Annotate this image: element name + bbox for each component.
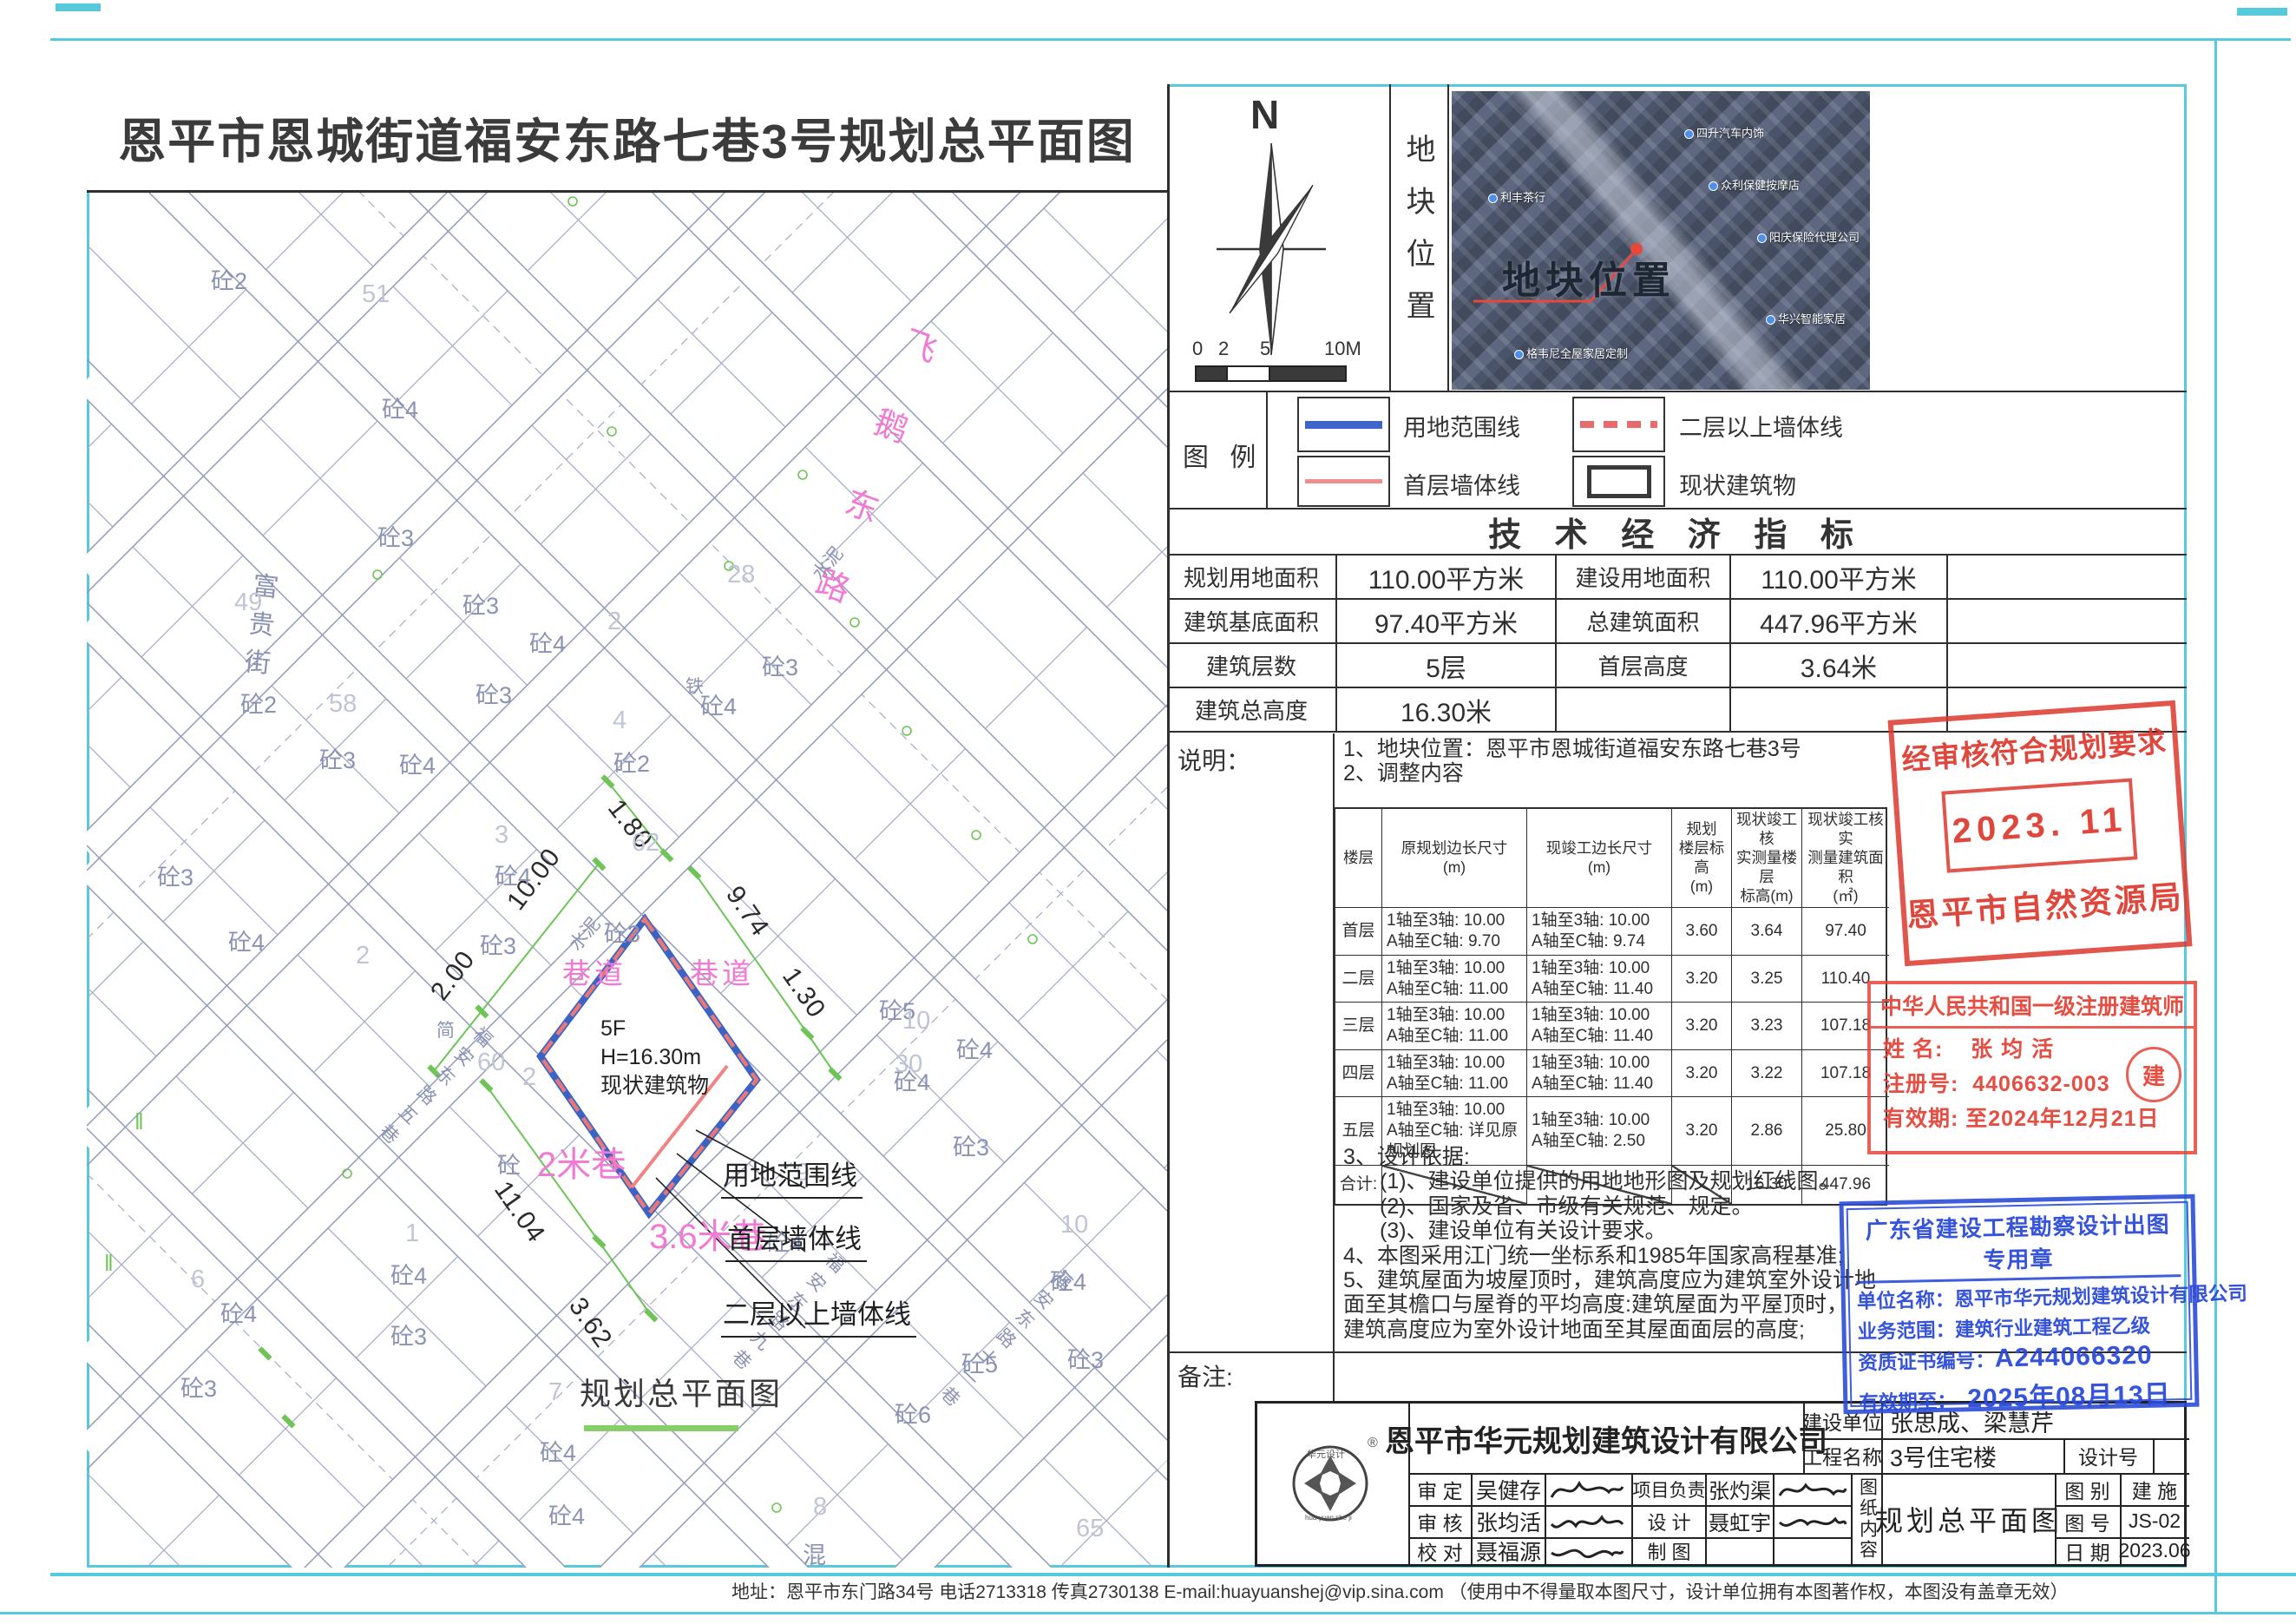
proofreader-label: 校 对 <box>1409 1537 1471 1564</box>
design-no-value <box>2153 1438 2189 1473</box>
legend-sample-building <box>1572 456 1665 507</box>
signature-scribble <box>1776 1475 1847 1504</box>
map-label: 砼3 <box>390 1318 427 1351</box>
sheet-no-value: JS-02 <box>2120 1505 2189 1537</box>
sheet-content-value: 规划总平面图 <box>1883 1473 2055 1564</box>
tech-indicators-table: 规划用地面积110.00平方米建设用地面积110.00平方米 建筑基底面积97.… <box>1167 556 2187 733</box>
map-label: 10 <box>902 1007 930 1036</box>
reviewer-label: 审 核 <box>1409 1505 1471 1537</box>
legend-item-label: 二层以上墙体线 <box>1679 409 1843 443</box>
map-label: 7 <box>548 1378 562 1407</box>
satellite-location-marker <box>1452 91 1870 390</box>
page-rule-top <box>50 38 2291 41</box>
map-label: 砼4 <box>540 1434 576 1468</box>
footer-address-line: 地址：恩平市东门路34号 电话2713318 传真2730138 E-mail:… <box>731 1578 2069 1604</box>
map-label: 砼3 <box>1067 1341 1104 1375</box>
project-lead-label: 项目负责 <box>1633 1473 1705 1505</box>
existing-building-sample <box>1587 465 1651 498</box>
boundary-line-sample <box>1305 421 1382 429</box>
map-label: 砼3 <box>157 858 194 892</box>
map-label: 砼3 <box>476 676 512 710</box>
approver-name: 吴健存 <box>1473 1473 1545 1505</box>
drafter-name <box>1707 1537 1773 1564</box>
architect-seal-icon: 建 <box>2126 1047 2181 1102</box>
map-label: 3 <box>495 821 508 850</box>
satellite-big-label: 地块位置 <box>1502 249 1676 305</box>
proofreader-name: 聂福源 <box>1473 1537 1545 1564</box>
map-label: 51 <box>362 280 390 309</box>
signature-scribble <box>1548 1475 1624 1504</box>
map-label: 6 <box>191 1266 205 1294</box>
north-letter: N <box>1250 91 1279 138</box>
map-callout-label: 用地范围线 <box>721 1154 863 1199</box>
page-rule-right <box>2214 38 2217 1613</box>
designer-label: 设 计 <box>1633 1505 1705 1537</box>
note-line: 面至其檐口与屋脊的平均高度:建筑屋面为平屋顶时， <box>1343 1292 1876 1317</box>
project-lead-name: 张灼渠 <box>1707 1473 1773 1505</box>
sheet-type-value: 建 施 <box>2120 1473 2189 1505</box>
map-callout-label: 首层墙体线 <box>725 1217 867 1262</box>
map-label: 8 <box>813 1493 827 1522</box>
map-label: 砼2 <box>211 262 247 296</box>
map-label: 简 <box>436 1016 455 1042</box>
map-label: 62 <box>632 829 659 858</box>
design-institute-stamp: 广东省建设工程勘察设计出图专用章 单位名称：恩平市华元规划建筑设计有限公司 业务… <box>1839 1194 2199 1415</box>
map-label: 2米巷 <box>537 1136 626 1187</box>
signature-scribble <box>1548 1507 1624 1536</box>
scan-corner-mark <box>56 3 101 11</box>
note-line: (3)、建设单位有关设计要求。 <box>1343 1219 1876 1243</box>
approver-label: 审 定 <box>1409 1473 1471 1505</box>
floor-table-row: 二层 1轴至3轴: 10.00A轴至C轴: 11.00 1轴至3轴: 10.00… <box>1335 956 1886 1003</box>
date-label: 日 期 <box>2055 1537 2120 1564</box>
svg-text:hua yuan she ji: hua yuan she ji <box>1305 1514 1352 1522</box>
legend-sample-upper-wall <box>1572 397 1665 452</box>
caption-underline <box>584 1425 738 1431</box>
first-floor-wall-line-sample <box>1305 479 1382 483</box>
notes-label: 说明： <box>1178 742 1250 777</box>
svg-text:®: ® <box>1368 1436 1378 1450</box>
date-value: 2023.06 <box>2120 1537 2189 1564</box>
map-label: 砼4 <box>390 1257 427 1291</box>
company-name: 恩平市华元规划建筑设计有限公司 <box>1409 1404 1803 1473</box>
floor-table-row: 首层 1轴至3轴: 10.00A轴至C轴: 9.70 1轴至3轴: 10.00A… <box>1335 908 1886 956</box>
map-label: 巷道 <box>562 950 626 992</box>
map-label: 铁 <box>686 673 704 699</box>
map-label: 砼4 <box>700 687 737 721</box>
map-label: 1 <box>405 1220 419 1248</box>
note-line: 4、本图采用江门统一坐标系和1985年国家高程基准; <box>1343 1244 1876 1268</box>
floor-table-row: 四层 1轴至3轴: 10.00A轴至C轴: 11.00 1轴至3轴: 10.00… <box>1335 1050 1886 1098</box>
map-label: 65 <box>1076 1515 1104 1543</box>
note-line: 1、地块位置：恩平市恩城街道福安东路七巷3号 <box>1343 737 1801 761</box>
map-label: 砼4 <box>228 924 265 957</box>
page-rule-bottom2 <box>0 1612 2296 1614</box>
map-label: 砼3 <box>462 587 499 621</box>
signature-scribble <box>1776 1507 1847 1536</box>
floor-table-row: 三层 1轴至3轴: 10.00A轴至C轴: 11.00 1轴至3轴: 10.00… <box>1335 1003 1886 1050</box>
map-label: 混 <box>803 1536 826 1568</box>
map-label: 砼6 <box>895 1396 931 1430</box>
scale-bar: 0 2 5 10M <box>1192 338 1366 390</box>
map-label: 60 <box>477 1049 505 1077</box>
note-line: 5、建筑屋面为坡屋顶时，建筑高度应为建筑室外设计地 <box>1343 1268 1876 1292</box>
map-label: 砼4 <box>548 1497 585 1531</box>
scan-corner-mark <box>2237 8 2287 16</box>
map-label: 10 <box>1060 1211 1088 1239</box>
signature-scribble <box>1548 1539 1624 1565</box>
map-label: 49 <box>234 588 262 617</box>
legend-item-label: 现状建筑物 <box>1679 467 1796 501</box>
sheet-type-label: 图 别 <box>2055 1473 2120 1505</box>
designer-name: 聂虹宇 <box>1707 1505 1773 1537</box>
map-label: 砼4 <box>956 1031 993 1065</box>
satellite-image: 四升汽车内饰众利保健按摩店利丰茶行阳庆保险代理公司华兴智能家居格韦尼全屋家居定制… <box>1452 91 1870 390</box>
design-no-label: 设计号 <box>2063 1438 2153 1473</box>
map-label: 砼3 <box>319 741 356 775</box>
note-line: (1)、建设单位提供的用地地形图及规划红线图。 <box>1343 1169 1876 1193</box>
map-label: 30 <box>895 1050 922 1079</box>
location-label-column: 地块位置 <box>1389 84 1447 391</box>
planning-approval-stamp: 经审核符合规划要求 2023. 11 恩平市自然资源局 <box>1887 700 2192 966</box>
title-block: 华元设计 hua yuan she ji ® 恩平市华元规划建筑设计有限公司 建… <box>1255 1401 2187 1567</box>
approval-date: 2023. 11 <box>1941 778 2137 872</box>
map-label: 28 <box>727 561 755 589</box>
note-line: 建筑高度应为室外设计地面至其屋面面层的高度; <box>1343 1318 1876 1342</box>
site-plan-map: 飞鹅东路富贵街福安东路五巷福安东路九巷福安东路十一巷巷道巷道2米巷3.6米巷1.… <box>87 84 1167 1568</box>
map-label: 砼2 <box>240 686 277 720</box>
legend-sample-first-wall <box>1297 456 1390 507</box>
map-label: 砼3 <box>953 1128 989 1162</box>
svg-text:华元设计: 华元设计 <box>1307 1448 1345 1460</box>
legend-item-label: 首层墙体线 <box>1403 467 1520 501</box>
drawing-title: 恩平市恩城街道福安东路七巷3号规划总平面图 <box>118 102 1136 172</box>
map-label: 砼3 <box>480 927 516 961</box>
map-caption: 规划总平面图 <box>580 1369 783 1414</box>
legend-sample-boundary <box>1297 397 1390 452</box>
map-label: 砼3 <box>762 648 798 682</box>
reviewer-name: 张均活 <box>1473 1505 1545 1537</box>
remarks-label: 备注: <box>1178 1358 1233 1393</box>
drafter-label: 制 图 <box>1633 1537 1705 1564</box>
legend-item-label: 用地范围线 <box>1403 409 1520 443</box>
note-line: 2、调整内容 <box>1343 761 1801 786</box>
map-label: 2 <box>607 608 621 636</box>
map-label: 砼3 <box>377 519 414 553</box>
map-titlebar: 恩平市恩城街道福安东路七巷3号规划总平面图 <box>87 84 1167 193</box>
map-label: ‖ <box>104 1250 114 1277</box>
map-label: 砼3 <box>180 1370 217 1404</box>
north-arrow-icon <box>1215 138 1328 355</box>
map-label: 砼4 <box>382 391 418 424</box>
upper-wall-line-sample <box>1580 421 1657 428</box>
map-label: 砼4 <box>1050 1263 1086 1297</box>
page-rule-bottom <box>50 1573 2296 1576</box>
project-label: 工程名称 <box>1803 1438 1881 1473</box>
map-label: 4 <box>613 707 626 735</box>
map-label: 58 <box>329 690 357 719</box>
map-label: ‖ <box>134 1108 144 1135</box>
map-label: 砼3 <box>604 915 640 949</box>
map-label: 巷道 <box>690 950 754 992</box>
map-callout-label: 二层以上墙体线 <box>721 1292 916 1338</box>
architect-license-stamp: 中华人民共和国一级注册建筑师 姓 名: 张均活 注册号: 4406632-003… <box>1867 981 2197 1154</box>
map-label: 砼4 <box>399 746 436 780</box>
map-label: 砼5 <box>961 1345 998 1379</box>
map-label: 砼2 <box>613 745 650 779</box>
company-logo: 华元设计 hua yuan she ji ® <box>1281 1431 1385 1535</box>
map-label: 砼4 <box>220 1295 257 1329</box>
map-label: 2 <box>522 1063 536 1092</box>
plot-annotation: 5F H=16.30m 现状建筑物 <box>600 1015 709 1101</box>
map-label: 2 <box>356 942 370 970</box>
map-label: 砼4 <box>495 858 531 891</box>
map-label: 砼 <box>497 1147 521 1180</box>
sheet-no-label: 图 号 <box>2055 1505 2120 1537</box>
map-label: 砼4 <box>529 625 566 659</box>
note-line: 3、设计依据: <box>1343 1145 1876 1169</box>
note-line: (2)、国家及省、市级有关规范、规定。 <box>1343 1194 1876 1219</box>
project-value: 3号住宅楼 <box>1881 1438 2072 1473</box>
legend-label: 图 例 <box>1183 436 1263 474</box>
tech-indicators-title: 技 术 经 济 指 标 <box>1167 508 2187 556</box>
